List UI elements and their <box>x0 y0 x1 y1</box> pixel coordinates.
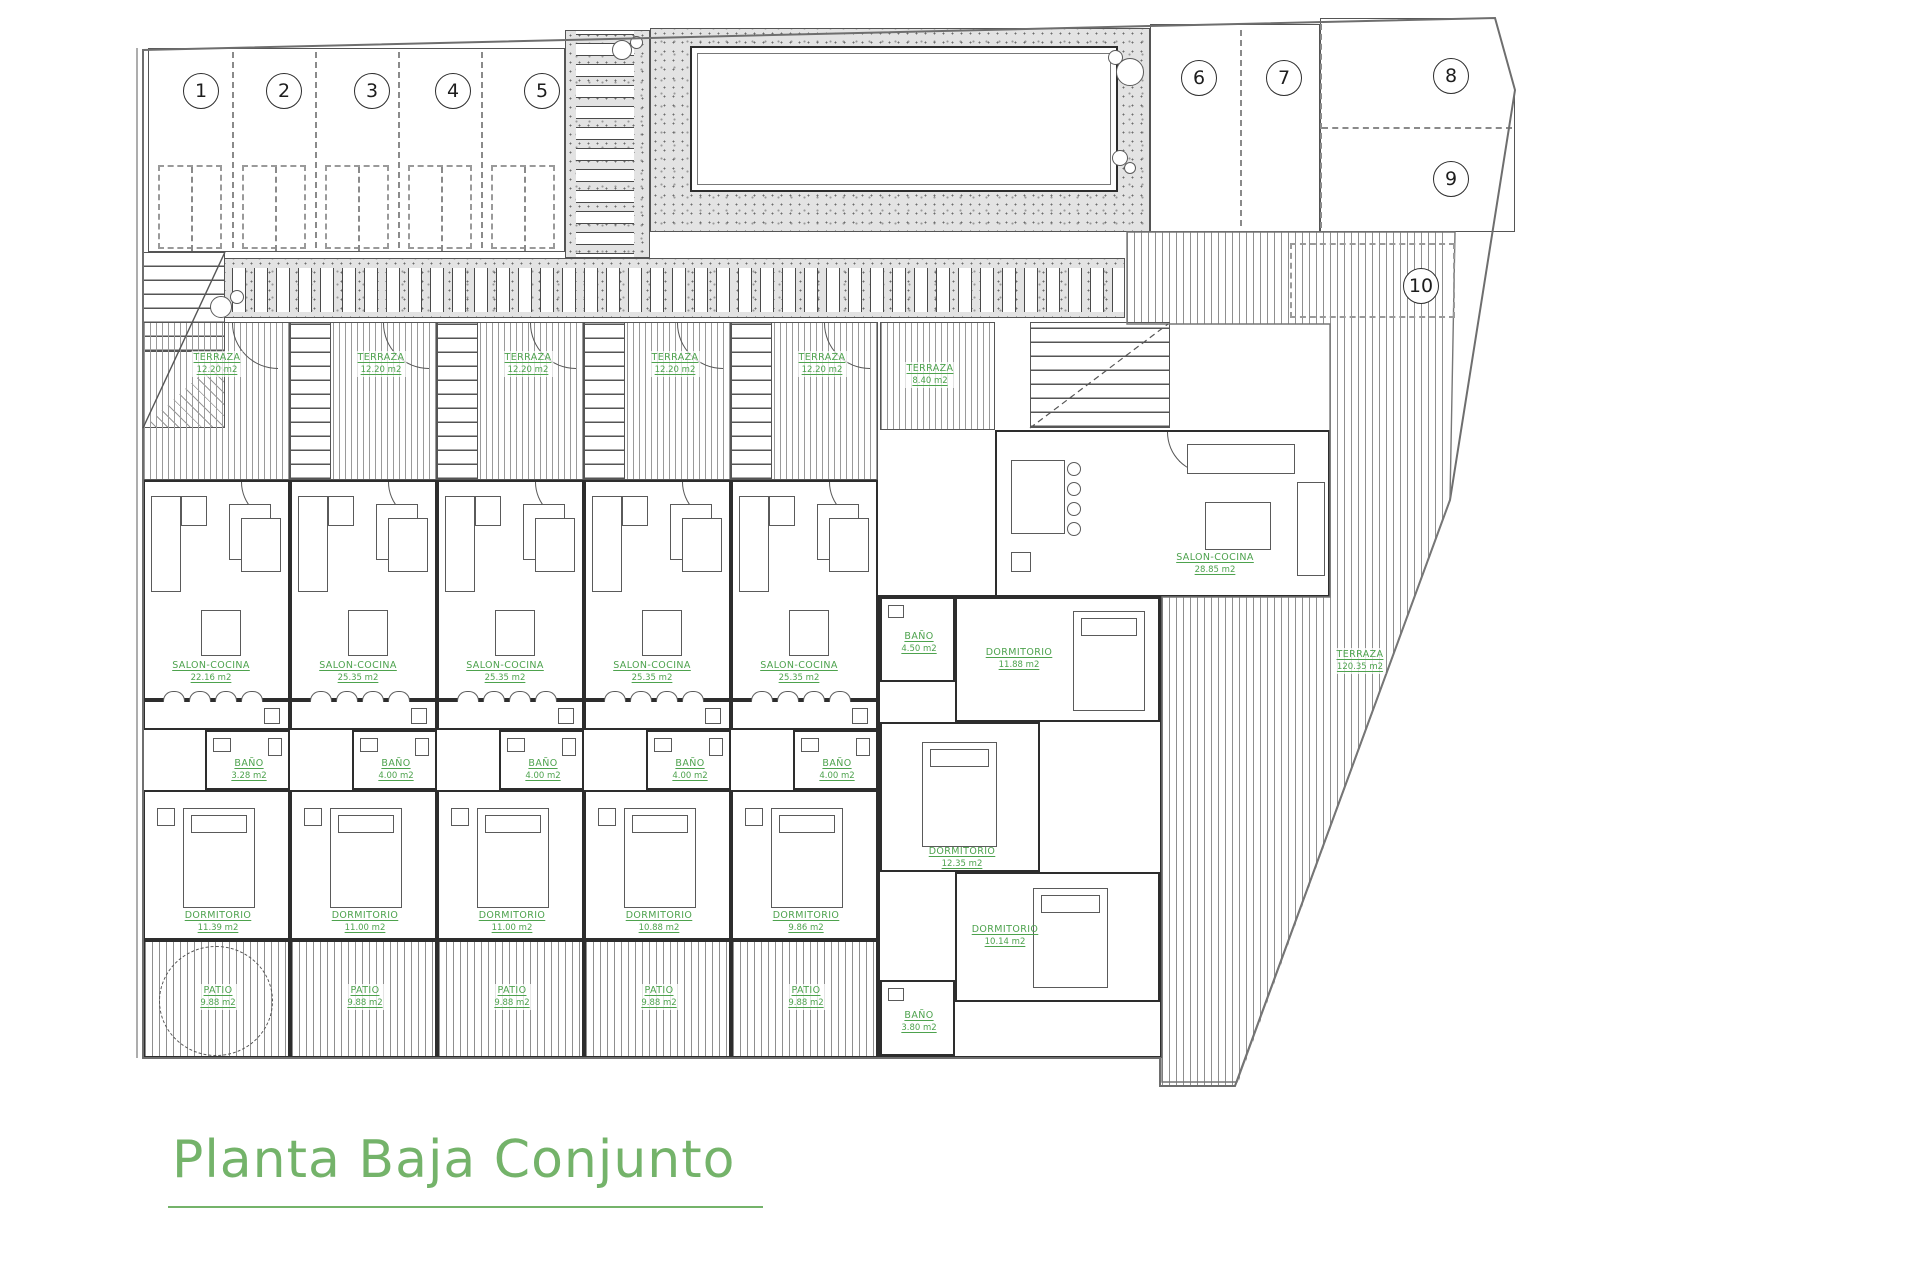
coffee-table <box>1205 502 1271 550</box>
boardwalk-path <box>183 258 1125 318</box>
room-label-salon: SALON-COCINA25.35 m2 <box>466 660 544 684</box>
parking-bay-marking <box>491 165 555 249</box>
dormitorio: DORMITORIO9.86 m2 <box>731 790 878 940</box>
coffee-table <box>495 610 535 656</box>
plot-divider <box>1320 24 1322 228</box>
room-label-salon: SALON-COCINA22.16 m2 <box>172 660 250 684</box>
washbasin <box>801 738 819 752</box>
drawing-title: Planta Baja Conjunto <box>168 1130 763 1208</box>
patio: PATIO9.88 m2 <box>143 940 290 1058</box>
coffee-table <box>348 610 388 656</box>
terrace: TERRAZA12.20 m2 <box>143 322 290 480</box>
plot-divider <box>1322 127 1512 129</box>
terrace: TERRAZA12.20 m2 <box>584 322 731 480</box>
big-unit-stair <box>1030 322 1170 428</box>
nightstand <box>598 808 616 826</box>
salon-cocina: SALON-COCINA22.16 m2 <box>143 480 290 700</box>
sofa <box>328 496 354 526</box>
room-label-big-dorm3: DORMITORIO10.14 m2 <box>972 924 1039 948</box>
parking-bay-marking <box>242 165 306 249</box>
parking-bay-marking <box>325 165 389 249</box>
room-label-salon: SALON-COCINA25.35 m2 <box>760 660 838 684</box>
room-label-patio: PATIO9.88 m2 <box>198 984 237 1010</box>
room-label-terraza: TERRAZA12.20 m2 <box>650 351 701 377</box>
rock-circle <box>612 40 632 60</box>
bed <box>1073 611 1145 711</box>
bathroom: BAÑO4.00 m2 <box>646 730 731 790</box>
chair-circle <box>1067 482 1081 496</box>
townhouse-unit-2: TERRAZA12.20 m2 SALON-COCINA25.35 m2 BAÑ… <box>290 322 437 1058</box>
sofa <box>151 496 181 592</box>
plot-number-9: 9 <box>1433 161 1469 197</box>
room-label-terraza: TERRAZA12.20 m2 <box>503 351 554 377</box>
parking-divider <box>315 52 317 248</box>
sofa <box>622 496 648 526</box>
parking-divider <box>1240 30 1242 226</box>
parking-bay-marking <box>158 165 222 249</box>
patio: PATIO9.88 m2 <box>584 940 731 1058</box>
dormitorio: DORMITORIO11.39 m2 <box>143 790 290 940</box>
room-label-dorm: DORMITORIO11.00 m2 <box>479 910 546 934</box>
sofa <box>592 496 622 592</box>
sofa <box>769 496 795 526</box>
bed <box>624 808 696 908</box>
dormitorio: DORMITORIO11.00 m2 <box>437 790 584 940</box>
coffee-table <box>642 610 682 656</box>
room-label-terraza: TERRAZA12.20 m2 <box>797 351 848 377</box>
room-label-salon: SALON-COCINA25.35 m2 <box>319 660 397 684</box>
chair-circle <box>1067 522 1081 536</box>
stair-flight <box>732 323 772 479</box>
sofa <box>475 496 501 526</box>
room-label-garden: TERRAZA120.35 m2 <box>1335 648 1386 674</box>
room-label-big-bano1: BAÑO4.50 m2 <box>901 631 936 655</box>
washbasin <box>888 988 904 1001</box>
big-unit-dorm-1: DORMITORIO11.88 m2 <box>955 597 1160 722</box>
garden-terrace-area <box>1127 232 1449 1086</box>
parking-divider <box>232 52 234 248</box>
room-label-bano: BAÑO4.00 m2 <box>525 758 560 782</box>
stair-flight <box>438 323 478 479</box>
nightstand <box>451 808 469 826</box>
chair-circle <box>1067 462 1081 476</box>
rock-circle <box>1124 162 1136 174</box>
bed <box>183 808 255 908</box>
kitchen-counter <box>584 700 731 730</box>
bed <box>1033 888 1108 988</box>
nightstand <box>157 808 175 826</box>
stepping-stone-path <box>565 30 650 258</box>
sofa <box>298 496 328 592</box>
townhouse-unit-5: TERRAZA12.20 m2 SALON-COCINA25.35 m2 BAÑ… <box>731 322 878 1058</box>
plot-number-5: 5 <box>524 73 560 109</box>
cooktop-arcs <box>310 691 410 702</box>
patio: PATIO9.88 m2 <box>437 940 584 1058</box>
cooktop-arcs <box>457 691 557 702</box>
terrace: TERRAZA12.20 m2 <box>437 322 584 480</box>
washbasin <box>888 605 904 618</box>
plot-number-6: 6 <box>1181 60 1217 96</box>
armchair <box>829 518 869 572</box>
cooktop-arcs <box>751 691 851 702</box>
patio: PATIO9.88 m2 <box>290 940 437 1058</box>
washbasin <box>507 738 525 752</box>
armchair <box>241 518 281 572</box>
room-label-dorm: DORMITORIO11.00 m2 <box>332 910 399 934</box>
townhouse-unit-1: TERRAZA12.20 m2 SALON-COCINA22.16 m2 BAÑ… <box>143 322 290 1058</box>
sink <box>852 708 868 724</box>
floor-plan: 1 2 3 4 5 6 7 8 9 10 TERRAZA120.35 m2 <box>0 0 1920 1280</box>
armchair <box>535 518 575 572</box>
room-label-big-bano2: BAÑO3.80 m2 <box>901 1010 936 1034</box>
kitchen-counter <box>143 700 290 730</box>
room-label-terraza: TERRAZA12.20 m2 <box>192 351 243 377</box>
bathroom: BAÑO3.28 m2 <box>205 730 290 790</box>
room-label-big-salon: SALON-COCINA28.85 m2 <box>1176 552 1254 576</box>
bathroom: BAÑO4.00 m2 <box>499 730 584 790</box>
sofa <box>181 496 207 526</box>
plot-number-1: 1 <box>183 73 219 109</box>
armchair <box>682 518 722 572</box>
big-unit-salon <box>995 430 1330 597</box>
rock-circle <box>1108 50 1123 65</box>
parking-block-67 <box>1150 24 1320 232</box>
room-label-patio: PATIO9.88 m2 <box>786 984 825 1010</box>
bed <box>477 808 549 908</box>
salon-cocina: SALON-COCINA25.35 m2 <box>290 480 437 700</box>
room-label-dorm: DORMITORIO10.88 m2 <box>626 910 693 934</box>
coffee-table <box>201 610 241 656</box>
plot-number-10: 10 <box>1403 268 1439 304</box>
room-label-big-dorm2: DORMITORIO12.35 m2 <box>929 846 996 870</box>
cooktop-arcs <box>604 691 704 702</box>
swimming-pool <box>690 46 1118 192</box>
coffee-table <box>789 610 829 656</box>
patio: PATIO9.88 m2 <box>731 940 878 1058</box>
dormitorio: DORMITORIO10.88 m2 <box>584 790 731 940</box>
bathroom: BAÑO4.00 m2 <box>352 730 437 790</box>
washbasin <box>654 738 672 752</box>
salon-cocina: SALON-COCINA25.35 m2 <box>731 480 878 700</box>
room-label-bano: BAÑO3.28 m2 <box>231 758 266 782</box>
washbasin <box>360 738 378 752</box>
room-label-patio: PATIO9.88 m2 <box>345 984 384 1010</box>
toilet <box>562 738 576 756</box>
salon-cocina: SALON-COCINA25.35 m2 <box>584 480 731 700</box>
room-label-dorm: DORMITORIO11.39 m2 <box>185 910 252 934</box>
kitchen-counter <box>437 700 584 730</box>
big-unit-dorm-2: DORMITORIO12.35 m2 <box>880 722 1040 872</box>
bed <box>330 808 402 908</box>
dining-table <box>1011 460 1065 534</box>
parking-divider <box>481 52 483 248</box>
room-label-bano: BAÑO4.00 m2 <box>819 758 854 782</box>
terrace: TERRAZA12.20 m2 <box>290 322 437 480</box>
parking-bay-marking <box>408 165 472 249</box>
dormitorio: DORMITORIO11.00 m2 <box>290 790 437 940</box>
stair-flight <box>585 323 625 479</box>
plot-number-2: 2 <box>266 73 302 109</box>
plot-number-4: 4 <box>435 73 471 109</box>
parking-divider <box>398 52 400 248</box>
sink <box>558 708 574 724</box>
toilet <box>415 738 429 756</box>
rock-circle <box>210 296 232 318</box>
sofa <box>1297 482 1325 576</box>
plot-block-89 <box>1320 18 1515 232</box>
big-unit-bath-2: BAÑO3.80 m2 <box>880 980 955 1056</box>
room-label-terraza: TERRAZA12.20 m2 <box>356 351 407 377</box>
armchair <box>388 518 428 572</box>
cooktop-arcs <box>163 691 263 702</box>
room-label-bano: BAÑO4.00 m2 <box>378 758 413 782</box>
toilet <box>268 738 282 756</box>
plot-number-7: 7 <box>1266 60 1302 96</box>
room-label-dorm: DORMITORIO9.86 m2 <box>773 910 840 934</box>
room-label-patio: PATIO9.88 m2 <box>639 984 678 1010</box>
sink <box>411 708 427 724</box>
kitchen-unit <box>1011 552 1031 572</box>
plot-number-8: 8 <box>1433 58 1469 94</box>
room-label-patio: PATIO9.88 m2 <box>492 984 531 1010</box>
plot-number-3: 3 <box>354 73 390 109</box>
stair-flight <box>291 323 331 479</box>
room-label-bano: BAÑO4.00 m2 <box>672 758 707 782</box>
sink <box>264 708 280 724</box>
big-unit-bath-1: BAÑO4.50 m2 <box>880 597 955 682</box>
nightstand <box>304 808 322 826</box>
room-label-salon: SALON-COCINA25.35 m2 <box>613 660 691 684</box>
big-unit-dorm-3: DORMITORIO10.14 m2 <box>955 872 1160 1002</box>
kitchen-counter <box>290 700 437 730</box>
toilet <box>709 738 723 756</box>
washbasin <box>213 738 231 752</box>
room-label-big-terraza: TERRAZA8.40 m2 <box>905 362 956 388</box>
sink <box>705 708 721 724</box>
terrace: TERRAZA12.20 m2 <box>731 322 878 480</box>
townhouse-unit-3: TERRAZA12.20 m2 SALON-COCINA25.35 m2 BAÑ… <box>437 322 584 1058</box>
townhouse-unit-4: TERRAZA12.20 m2 SALON-COCINA25.35 m2 BAÑ… <box>584 322 731 1058</box>
kitchen-counter <box>731 700 878 730</box>
sofa <box>445 496 475 592</box>
room-label-big-dorm1: DORMITORIO11.88 m2 <box>986 647 1053 671</box>
bathroom: BAÑO4.00 m2 <box>793 730 878 790</box>
chair-circle <box>1067 502 1081 516</box>
sofa <box>1187 444 1295 474</box>
rock-circle <box>630 36 643 49</box>
bed <box>922 742 997 847</box>
rock-circle <box>230 290 244 304</box>
sofa <box>739 496 769 592</box>
salon-cocina: SALON-COCINA25.35 m2 <box>437 480 584 700</box>
nightstand <box>745 808 763 826</box>
toilet <box>856 738 870 756</box>
bed <box>771 808 843 908</box>
